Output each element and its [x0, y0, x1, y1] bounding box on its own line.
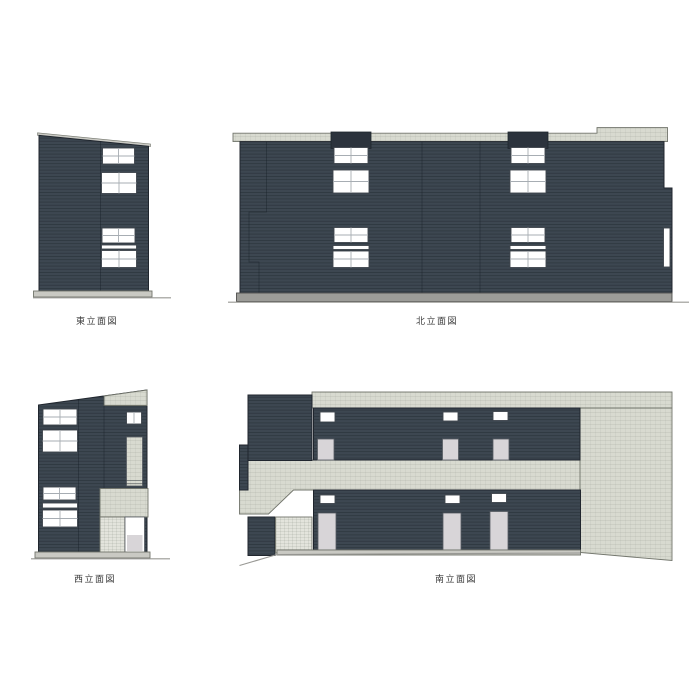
south-elevation-label: 南立面図: [416, 572, 496, 585]
door: [318, 439, 335, 460]
base-foundation: [237, 293, 673, 302]
side-window: [664, 228, 671, 267]
parapet-coping: [104, 390, 147, 406]
window: [102, 228, 135, 243]
window: [510, 170, 546, 193]
west-elevation: [31, 390, 170, 559]
window: [492, 494, 507, 503]
shutter-box: [43, 503, 78, 508]
north-elevation-label: 北立面図: [397, 314, 477, 327]
lower-stair-wall: [248, 517, 275, 556]
parapet-coping: [312, 392, 672, 408]
window: [320, 495, 335, 504]
window: [333, 170, 369, 193]
window-bay-cap: [508, 132, 548, 148]
window: [43, 487, 76, 500]
north-elevation: [228, 128, 689, 303]
window: [102, 251, 137, 268]
door: [490, 512, 508, 551]
east-elevation-label: 東立面図: [57, 314, 137, 327]
window: [43, 430, 78, 452]
door: [443, 439, 459, 460]
window: [333, 251, 369, 268]
door: [443, 513, 461, 550]
shutter-box: [510, 246, 546, 250]
window: [443, 412, 458, 421]
stair-tower-wall: [248, 395, 312, 461]
window: [43, 409, 77, 425]
elevations-drawing: [0, 0, 700, 700]
entry-porch: [100, 517, 125, 553]
parapet-coping: [233, 128, 668, 142]
window: [493, 412, 508, 421]
shutter-box: [333, 246, 369, 250]
door: [493, 439, 509, 460]
balcony-volume: [100, 489, 148, 518]
door: [318, 513, 336, 550]
south-elevation: [240, 392, 673, 566]
east-elevation: [33, 133, 171, 298]
window: [510, 251, 546, 268]
window: [334, 228, 368, 243]
window: [43, 510, 78, 527]
base-foundation: [35, 552, 150, 558]
entry-porch: [276, 517, 313, 553]
window: [127, 412, 142, 424]
door-panel: [127, 535, 143, 551]
glazing-panel: [127, 437, 143, 486]
wing-wall: [240, 445, 249, 490]
wall: [240, 142, 672, 293]
west-elevation-label: 西立面図: [55, 572, 135, 585]
window: [445, 495, 460, 504]
stairwell-glazing: [127, 437, 143, 486]
window: [103, 148, 135, 164]
window: [511, 228, 545, 243]
entrance-door: [125, 517, 145, 553]
base-foundation: [34, 291, 153, 297]
elevation-sheet: 東立面図 北立面図 西立面図 南立面図: [0, 0, 700, 700]
window: [334, 148, 368, 164]
window-bay-cap: [331, 132, 371, 148]
window: [511, 148, 545, 164]
window: [102, 173, 137, 194]
shutter-box: [102, 245, 137, 249]
end-wall-volume: [580, 408, 672, 561]
window: [320, 412, 335, 422]
